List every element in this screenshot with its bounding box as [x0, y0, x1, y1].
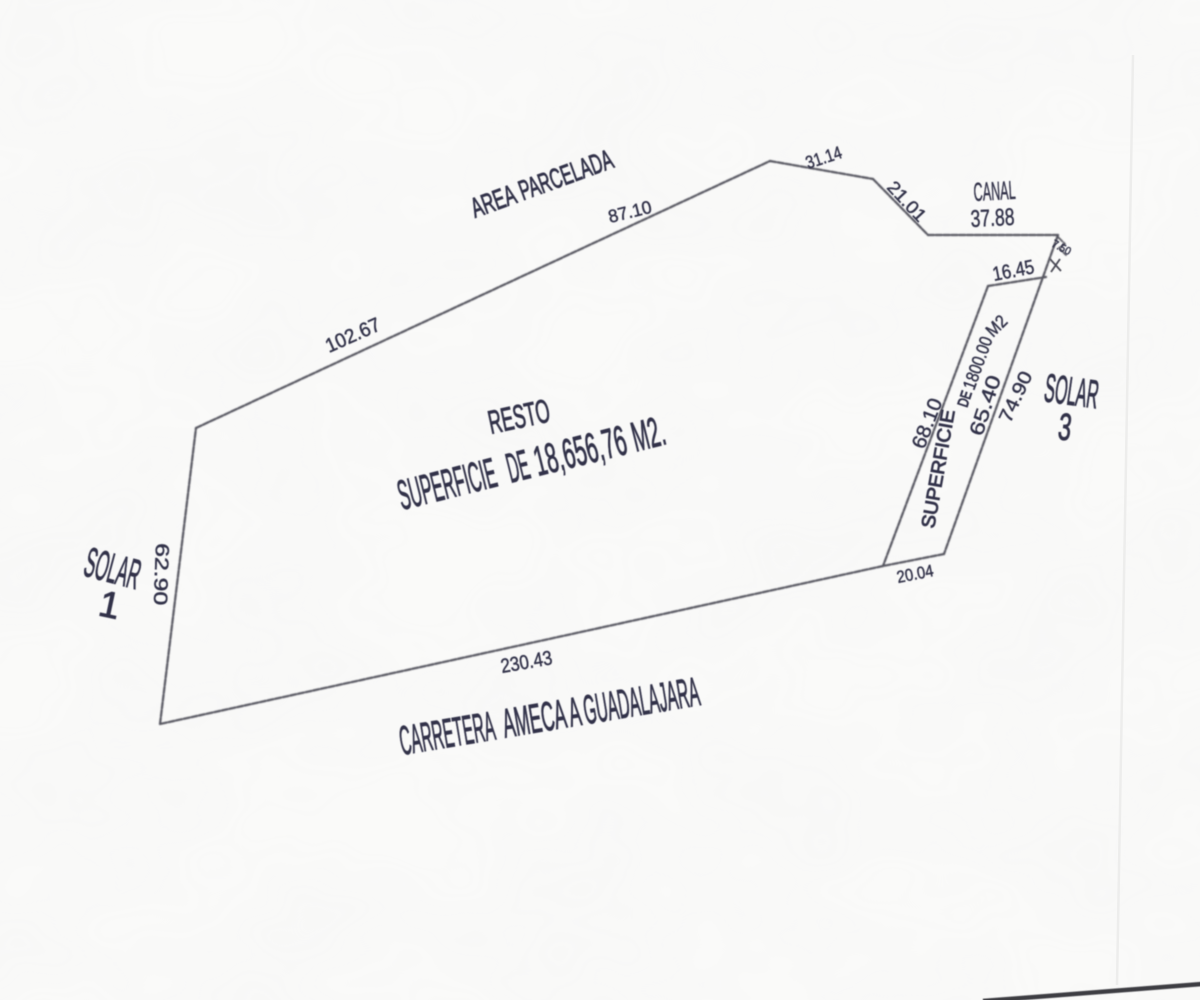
svg-text:37.88: 37.88 [970, 204, 1015, 233]
svg-text:CANAL: CANAL [973, 175, 1017, 207]
svg-text:62.90: 62.90 [149, 543, 172, 606]
